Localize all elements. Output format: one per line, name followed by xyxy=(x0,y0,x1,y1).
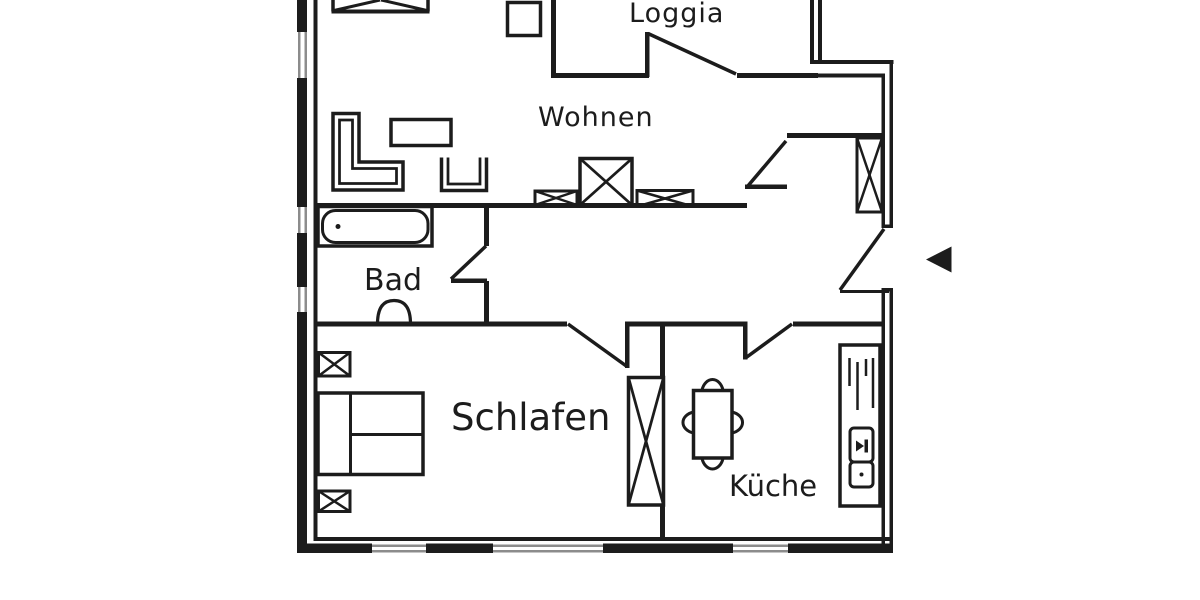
outer-wall-left xyxy=(297,0,318,553)
armchair xyxy=(442,158,487,191)
outer-wall-bottom xyxy=(300,537,893,553)
sink xyxy=(850,428,873,487)
bathroom-door xyxy=(451,246,486,279)
room-label-wohnen: Wohnen xyxy=(538,102,654,133)
kitchen-counter xyxy=(840,345,880,506)
room-label-schlafen: Schlafen xyxy=(451,396,610,439)
floor-plan-page: Loggia Wohnen Bad Schlafen Küche xyxy=(0,0,1200,600)
kitchen-door xyxy=(746,324,793,358)
coffee-table xyxy=(391,120,451,146)
nightstand xyxy=(319,491,351,512)
room-label-kueche: Küche xyxy=(729,469,817,503)
entrance-arrow-icon xyxy=(926,247,952,273)
bathtub xyxy=(318,207,432,247)
loggia-door xyxy=(648,34,736,75)
entrance-door xyxy=(840,229,889,292)
living-room-door xyxy=(747,141,786,187)
sideboard xyxy=(535,159,693,207)
washbasin xyxy=(378,301,411,325)
bedroom-door xyxy=(568,324,627,367)
floor-plan: Loggia Wohnen Bad Schlafen Küche xyxy=(0,0,1200,600)
bed xyxy=(318,393,423,475)
room-label-bad: Bad xyxy=(364,263,422,298)
stove xyxy=(850,358,874,410)
dining-table xyxy=(683,379,743,469)
wardrobe xyxy=(629,378,664,506)
room-label-loggia: Loggia xyxy=(629,0,724,29)
stool xyxy=(508,3,541,36)
bed-top-cut xyxy=(332,0,430,12)
nightstand xyxy=(319,353,351,377)
shaft xyxy=(857,138,882,212)
